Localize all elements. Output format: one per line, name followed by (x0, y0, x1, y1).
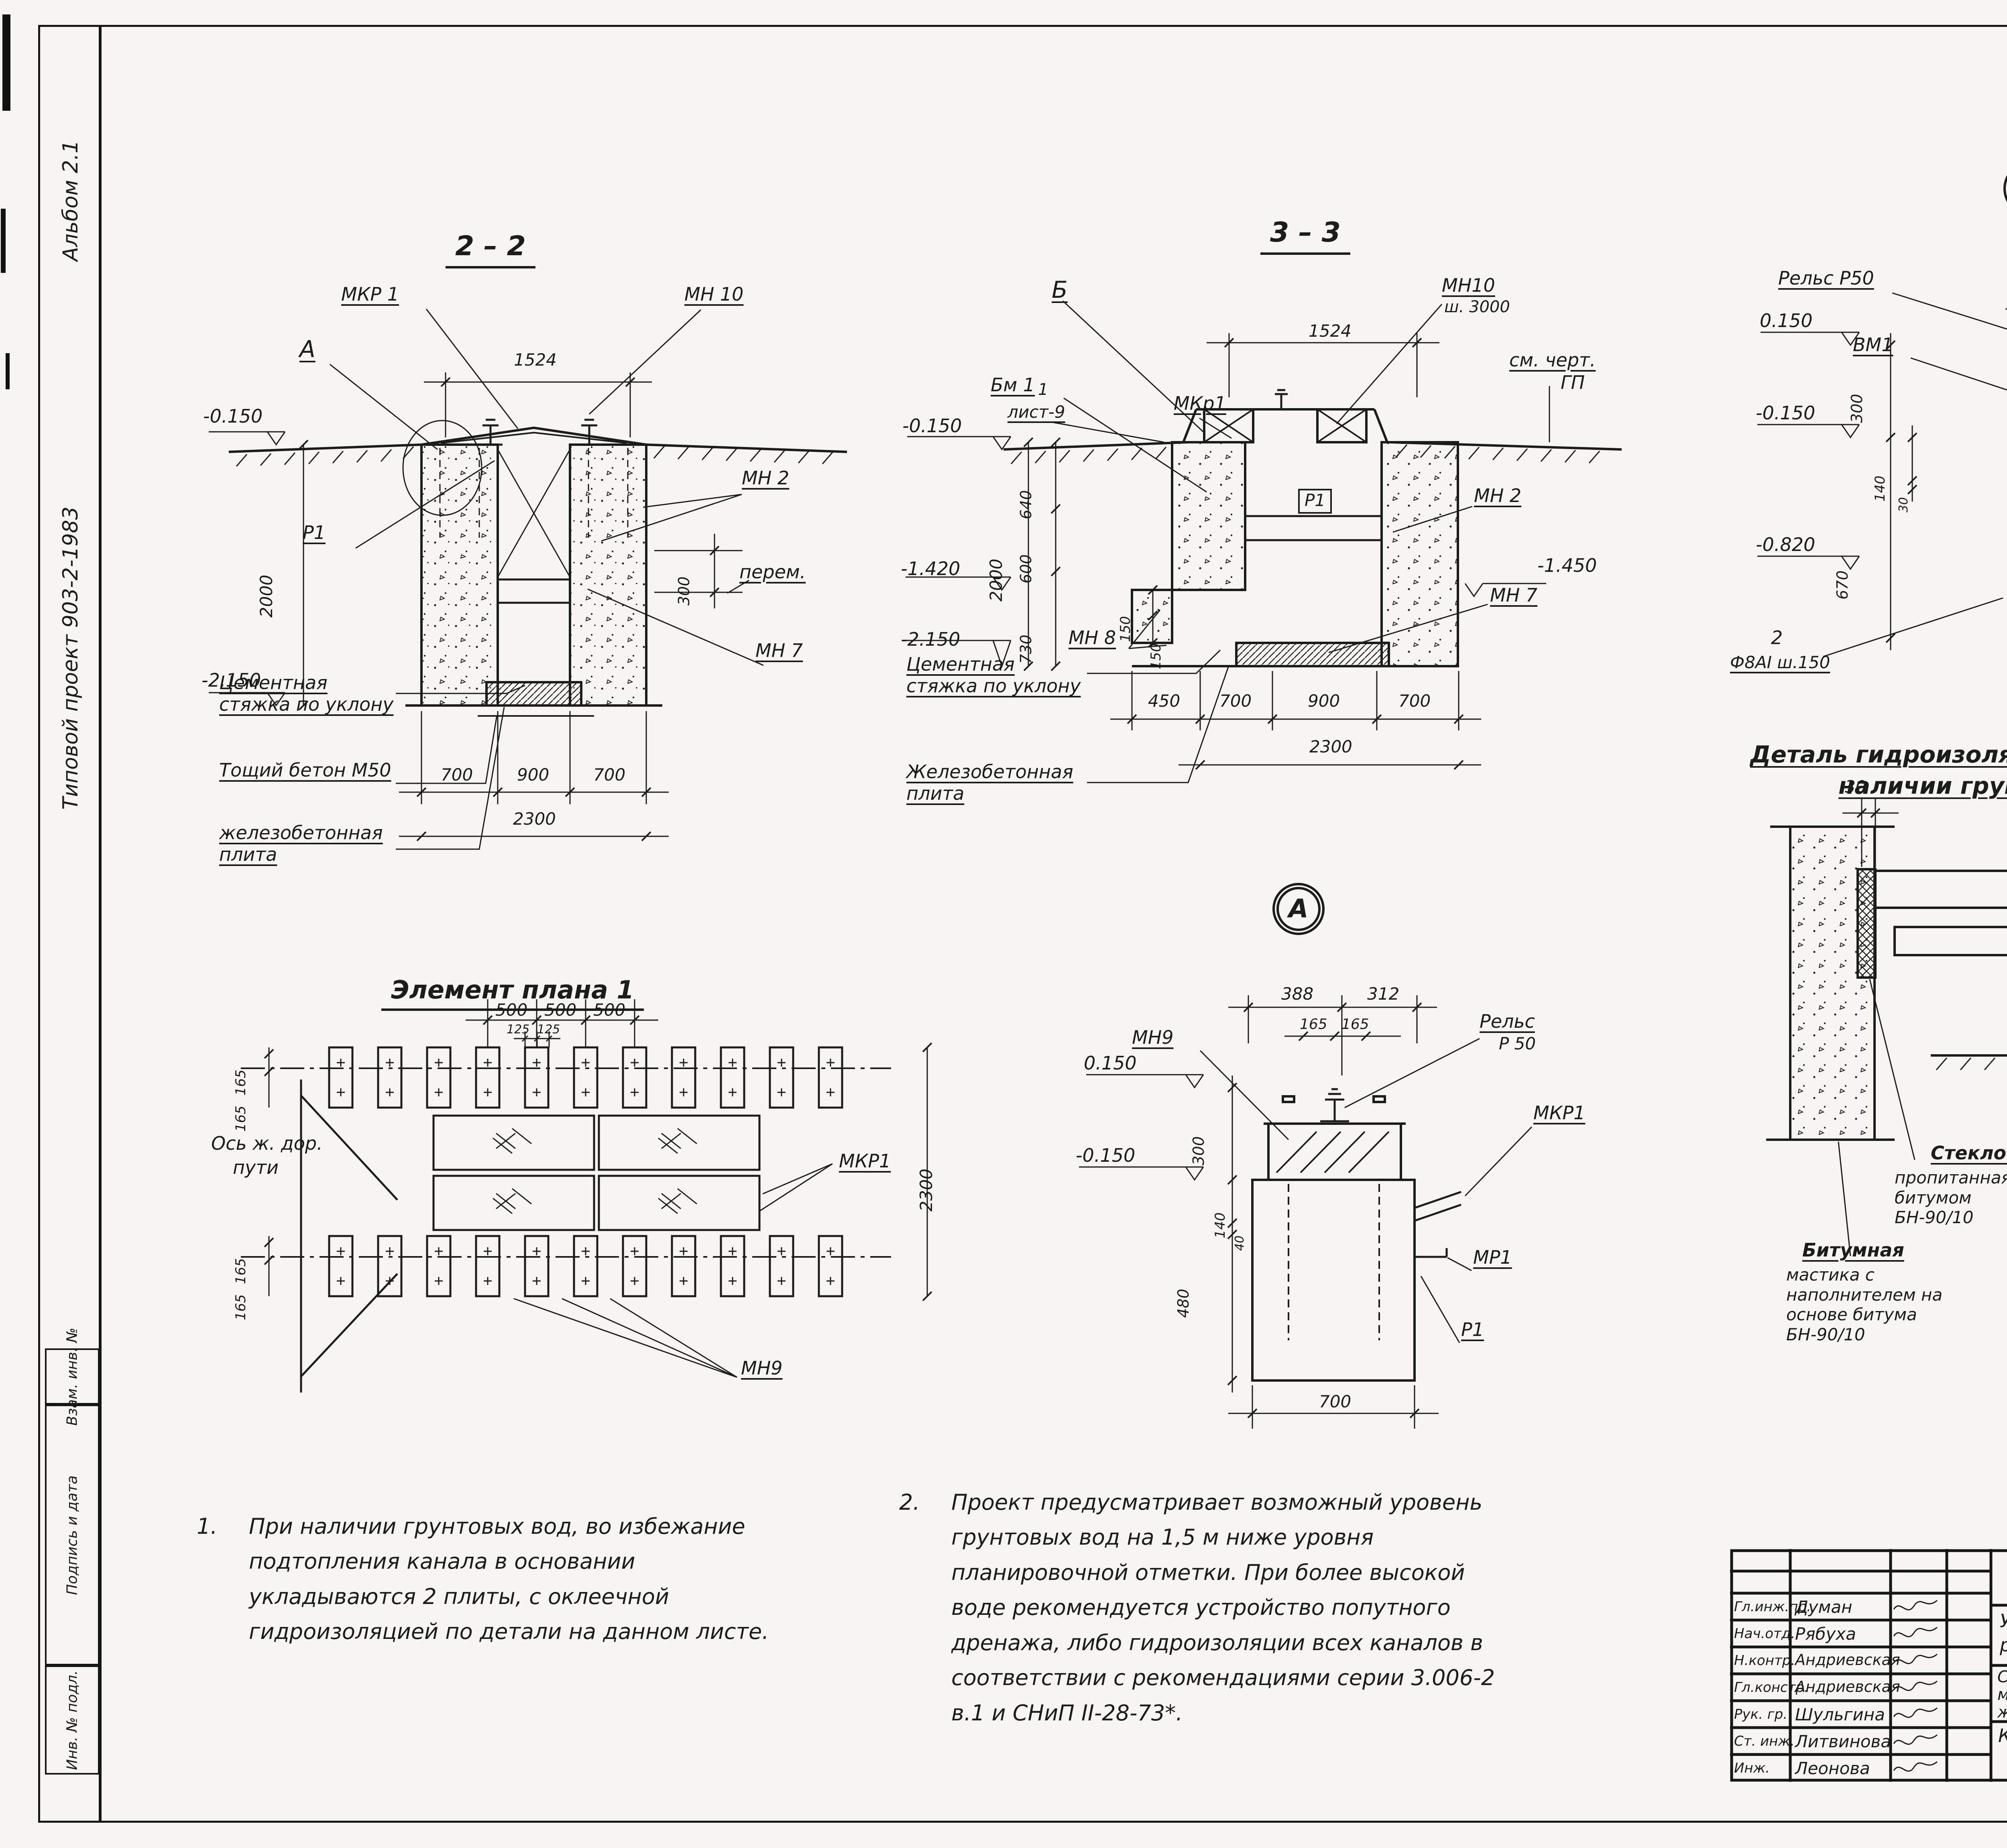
element-plan-graphic (209, 975, 991, 1409)
dim-300: 300 (1190, 1136, 1207, 1165)
hydro-title-1: Деталь гидроизоляции днища при (1750, 741, 2007, 768)
elev-mid: -0.150 (1076, 1145, 1135, 1166)
name-2: Андриевская (1795, 1651, 1900, 1669)
dim-125a: 125 (507, 1023, 529, 1037)
elev-1: -0.150 (902, 415, 962, 437)
callout-mn10: МН10 (1442, 274, 1495, 296)
document-code: ТП 903-2-1983 (2003, 1559, 2007, 1594)
note-2: 2. Проект предусматривает возможный уров… (899, 1485, 1513, 1730)
hydro-detail: Деталь гидроизоляции днища при наличии г… (1706, 738, 2007, 1389)
dim-600: 600 (1017, 554, 1035, 583)
sheet-ref: лист-9 (1008, 402, 1065, 422)
project-name: Установка мазутоснабжения Q=13 и 3,25/13… (2000, 1609, 2007, 1657)
elev-low: -0.820 (1756, 534, 1815, 555)
dim-900: 900 (517, 765, 549, 785)
dim-500a: 500 (495, 1000, 527, 1020)
glass-label: Стеклоткань (1931, 1142, 2007, 1164)
dim-500b: 500 (544, 1000, 576, 1020)
detail-a-marker: А (1288, 894, 1309, 924)
margin-project-label: Типовой проект 903-2-1983 (59, 506, 83, 809)
margin-album-label: Альбом 2.1 (59, 140, 83, 261)
callout-rail: Рельс (1480, 1010, 1535, 1032)
callout-p1: Р1 (303, 522, 326, 543)
callout-gp2: ГП (1561, 372, 1585, 393)
callout-mn8: МН 8 (1069, 627, 1116, 649)
rebar-left: Ф8АI ш.150 (1730, 653, 1830, 673)
callout-b: Б (1052, 276, 1068, 303)
dim-500c: 500 (593, 1000, 625, 1020)
callout-mkr1: МКр1 (1174, 392, 1226, 414)
dim-2000: 2000 (986, 559, 1006, 602)
callout-rail: Рельс Р50 (1778, 267, 1874, 289)
elev-3: -2.150 (901, 628, 960, 650)
dim-30: 30 (1845, 777, 1866, 797)
material-slab: железобетонная плита (219, 822, 396, 866)
dim-165a: 165 (233, 1069, 249, 1096)
content-line-1: КНм1. Разрезы 2-2÷3-3. (1998, 1725, 2007, 1746)
dim-300: 300 (1848, 394, 1866, 423)
detail-b: Б Рельс Р50 388 312 165 165 ВМ1 МН9 МКР1… (1722, 132, 2007, 734)
name-3: Андриевская (1795, 1678, 1900, 1696)
dim-40: 40 (1233, 1236, 1247, 1251)
elev-mid: -0.150 (1756, 402, 1815, 424)
dim-312: 312 (1367, 984, 1399, 1004)
dim-150b: 150 (1148, 643, 1164, 669)
dim-700b: 700 (1398, 691, 1431, 711)
object-line-2: мазута, слив и хранение (1997, 1685, 2007, 1704)
name-6: Леонова (1795, 1759, 1870, 1778)
dim-2000: 2000 (256, 575, 276, 618)
callout-mkr1: МКР 1 (341, 283, 399, 305)
object-line-1: Сооружения, слива (1997, 1668, 2007, 1686)
dim-1524: 1524 (514, 350, 557, 370)
dim-700b: 700 (593, 765, 625, 785)
detail-b-graphic (1722, 132, 2007, 734)
scan-artifact (1, 209, 6, 273)
stamp-cell-inv: Инв. № подл. (45, 1665, 100, 1775)
callout-p1: Р1 (1461, 1319, 1484, 1340)
element-plan-1: Элемент плана 1 500 500 500 125 125 165 … (209, 975, 991, 1409)
name-1: Рябуха (1795, 1624, 1856, 1644)
dim-165a: 165 (1300, 1016, 1327, 1033)
stamp-cell-podpis: Подпись и дата (45, 1405, 100, 1665)
title-block: ТП 903-2-1983 КЖ Установка мазутоснабжен… (1730, 1549, 2007, 1782)
axis-label-1: Ось ж. дор. (211, 1132, 323, 1154)
material-cement: Цементная стяжка по уклону (906, 653, 1087, 697)
axis-label-2: пути (233, 1157, 279, 1178)
callout-mkr1: МКР1 (1533, 1102, 1585, 1124)
section-2-2-title: 2 – 2 (446, 230, 535, 268)
section-2-2: 2 – 2 МКР 1 1524 МН 10 А -0.150 МН 2 Р1 … (181, 225, 887, 947)
role-2: Н.контр. (1734, 1653, 1795, 1669)
scan-artifact (2, 14, 10, 111)
callout-vm1: ВМ1 (1853, 334, 1893, 356)
role-6: Инж. (1734, 1760, 1770, 1776)
callout-mn7: МН 7 (755, 640, 803, 661)
callout-mn2: МН 2 (742, 467, 789, 489)
material-lean-concrete: Тощий бетон М50 (219, 759, 391, 781)
dim-670: 670 (1834, 570, 1851, 600)
section-3-3-title: 3 – 3 (1260, 217, 1350, 255)
detail-a: А 388 312 165 165 МН9 Рельс Р 50 МКР1 МР… (1060, 875, 1662, 1429)
object-line-3: жидких присадок. (1997, 1703, 2007, 1722)
dim-1524: 1524 (1309, 321, 1352, 341)
callout-mn9: МН9 (741, 1357, 783, 1379)
dim-150a: 150 (1117, 616, 1134, 642)
dim-140: 140 (1212, 1212, 1228, 1238)
detail-a-graphic (1060, 875, 1662, 1429)
callout-perem: перем. (739, 561, 806, 583)
note-2-text: Проект предусматривает возможный уровень… (899, 1485, 1513, 1730)
callout-p1: Р1 (1298, 489, 1332, 514)
scan-artifact (6, 353, 10, 389)
dim-30: 30 (1897, 497, 1911, 512)
dim-700: 700 (1319, 1392, 1351, 1411)
dim-165b: 165 (233, 1106, 249, 1132)
elev-top: -0.150 (203, 405, 263, 427)
elev-top: 0.150 (1760, 310, 1813, 331)
callout-mn10: МН 10 (684, 283, 743, 305)
dim-165d: 165 (233, 1294, 249, 1320)
role-5: Ст. инж. (1734, 1733, 1795, 1749)
callout-mn9: МН9 (1132, 1027, 1174, 1048)
note-2-number: 2. (899, 1485, 920, 1520)
section-3-3: 3 – 3 Б Бм 1 МКр1 МН10 ш. 3000 1524 см. … (883, 209, 1646, 875)
dim-2300: 2300 (916, 1169, 936, 1212)
name-5: Литвинова (1795, 1732, 1891, 1751)
dim-480: 480 (1174, 1289, 1192, 1318)
material-cement: Цементная стяжка по уклону (219, 672, 396, 716)
bitumen-label-2: мастика с наполнителем на основе битума … (1786, 1265, 1975, 1344)
material-slab: Железобетонная плита (906, 761, 1087, 805)
drawing-sheet: 24 Альбом 2.1 Типовой проект 903-2-1983 … (0, 0, 2007, 1848)
dim-700a: 700 (441, 765, 473, 785)
callout-mkr1: МКР1 (839, 1150, 891, 1172)
dim-165b: 165 (1341, 1016, 1369, 1033)
rebar-qty: 2 (1771, 627, 1783, 649)
bitumen-label: Битумная (1802, 1239, 1904, 1261)
callout-mn10-step: ш. 3000 (1444, 298, 1510, 317)
dim-125b: 125 (537, 1023, 560, 1037)
dim-140: 140 (1872, 476, 1888, 502)
dim-300: 300 (675, 576, 693, 606)
note-1-text: При наличии грунтовых вод, во избежание … (197, 1509, 791, 1649)
dim-450: 450 (1148, 691, 1180, 711)
dim-2300: 2300 (513, 809, 556, 829)
name-4: Шульгина (1795, 1705, 1885, 1724)
glass-label-2: пропитанная битумом БН-90/10 (1895, 1168, 2007, 1228)
elev-right: -1.450 (1537, 555, 1597, 576)
role-4: Рук. гр. (1734, 1706, 1787, 1722)
note-1: 1. При наличии грунтовых вод, во избежан… (197, 1509, 791, 1649)
dim-700a: 700 (1219, 691, 1252, 711)
callout-mn2: МН 2 (1474, 485, 1521, 506)
note-1-number: 1. (197, 1509, 218, 1544)
callout-mn7: МН 7 (1490, 584, 1537, 606)
callout-gp: см. черт. (1509, 349, 1596, 371)
elev-2: -1.420 (901, 558, 960, 579)
flag-1: 1 (1038, 380, 1048, 399)
dim-900: 900 (1308, 691, 1340, 711)
callout-rail2: Р 50 (1499, 1034, 1536, 1054)
callout-mp1: МР1 (1473, 1246, 1512, 1268)
elev-top: 0.150 (1084, 1052, 1137, 1074)
name-0: Думан (1795, 1597, 1852, 1617)
callout-bm1: Бм 1 (991, 374, 1035, 396)
callout-a: А (299, 335, 316, 363)
stamp-cell-vzam: Взам. инв. № (45, 1348, 100, 1405)
role-1: Нач.отд. (1734, 1626, 1795, 1642)
dim-165c: 165 (233, 1258, 249, 1284)
dim-388: 388 (1281, 984, 1313, 1004)
dim-2300: 2300 (1309, 737, 1352, 756)
dim-640: 640 (1017, 490, 1035, 519)
